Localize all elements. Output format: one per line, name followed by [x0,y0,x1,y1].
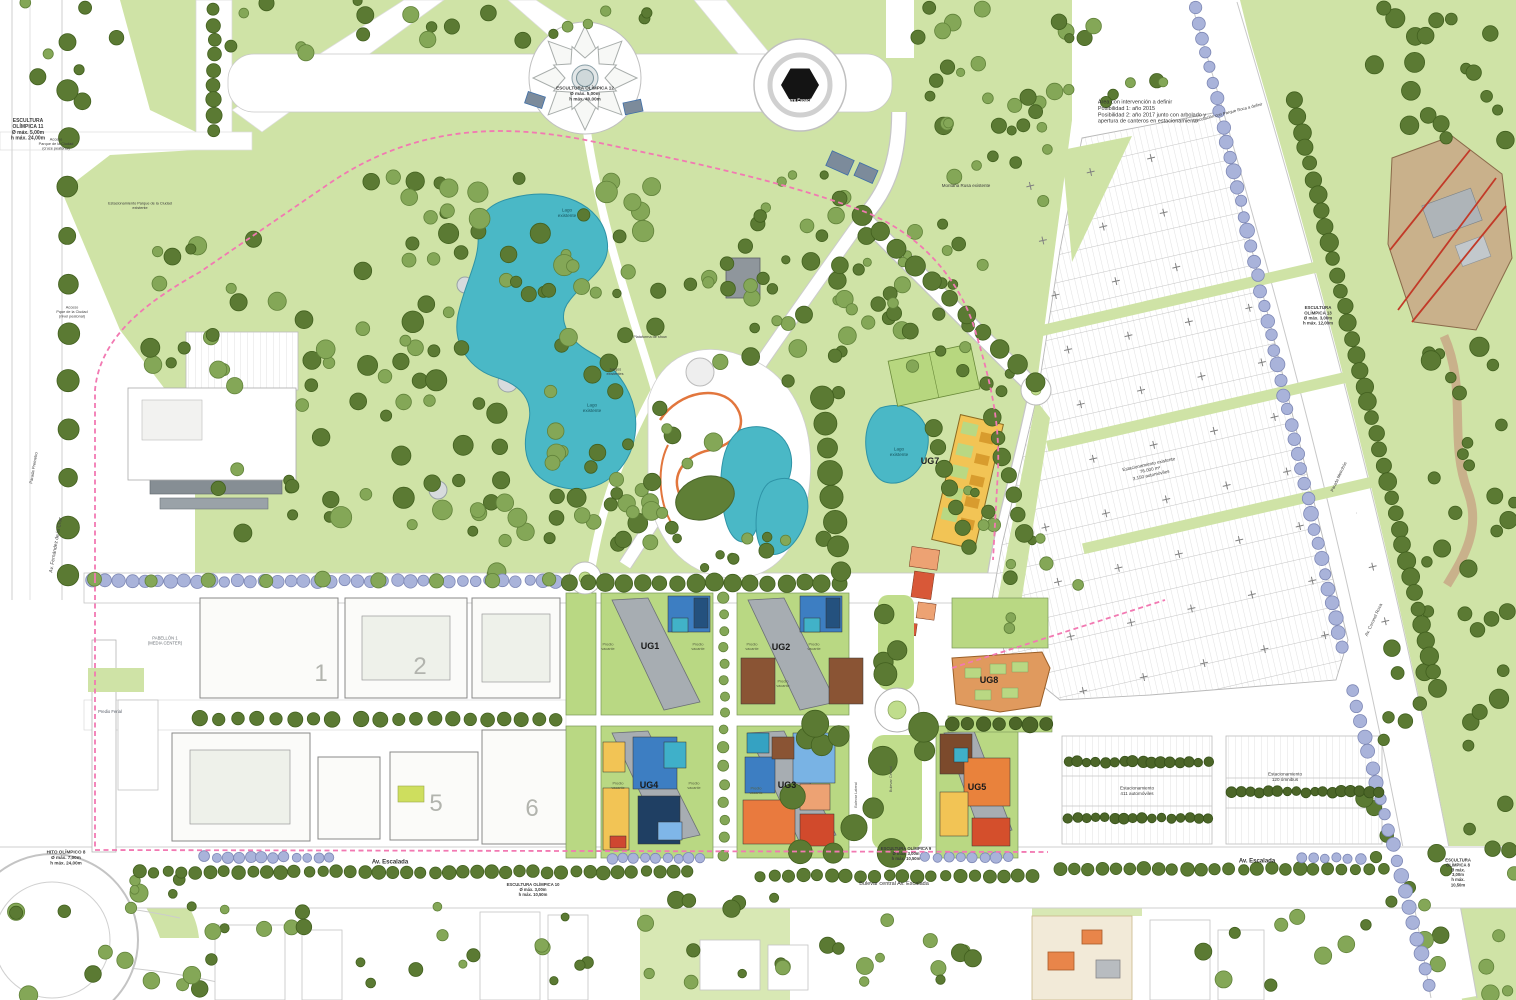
map-label: Lago existente [558,208,576,219]
map-label: 2 [413,655,426,683]
map-label: Predio Ferial [98,710,122,715]
map-label: UG2 [772,643,791,654]
map-label: Estacionamiento 120 ómnibus [1268,772,1302,783]
map-label: Predio vacante [776,680,789,689]
map-label: ESCULTURA OLÍMPICA 13 Ø máx. 3,00m h máx… [1303,306,1333,327]
map-label: Av. Coronel Roca [1364,603,1384,638]
map-label: UG8 [980,676,999,687]
map-labels: ESCULTURA OLÍMPICA 11 Ø máx. 5,00m h máx… [0,0,1516,1000]
map-label: Acceso Parque de la Ciudad (cruce peaton… [39,137,74,150]
map-label: Predio vacante [745,643,758,652]
map-label: UG1 [641,642,660,653]
map-label: Acceso Pque de la Ciudad (nivel peatonal… [56,305,87,318]
map-label: Bulevar Central [889,766,893,792]
map-label: ESCULTURA OLÍMPICA 8 Ø máx. 3,00m h máx.… [1445,858,1470,888]
map-label: 6 [525,797,538,825]
map-label: Parada Metrobús [1330,461,1348,492]
masterplan-map: ESCULTURA OLÍMPICA 11 Ø máx. 5,00m h máx… [0,0,1516,1000]
map-label: UG5 [968,783,987,794]
map-label: 5 [429,792,442,820]
map-label: Av. Escalada [372,858,408,865]
map-label: HITO OLÍMPICO 8 Ø máx. 7,00m h máx. 24,0… [47,850,86,866]
map-label: UG3 [778,781,797,792]
map-label: Av. Escalada [1239,857,1275,864]
map-label: 1 [314,662,327,690]
map-label: Lago existente [583,403,601,414]
map-label: Estacionamiento existente 76.000 m² 3.15… [1122,456,1178,483]
map-label: Área con intervención a definir Posibili… [1098,99,1206,125]
map-label: UG7 [921,457,940,468]
map-label: Juegos existentes [606,368,623,377]
map-label: Av. Fernández de la Cruz [48,517,64,573]
map-label: Predio vacante [611,782,624,791]
map-label: ESCULTURA OLÍMPICA 11 Ø máx. 5,00m h máx… [11,118,45,142]
map-label: Predio vacante [687,782,700,791]
map-label: ESCULTURA OLÍMPICA 9 Ø máx. 3,00m h máx.… [881,847,931,862]
map-label: Torre Espacial existente [786,98,815,108]
map-label: Vinculación con Parque Roca a definir [1193,102,1263,124]
map-label: Lago existente [890,447,908,458]
map-label: Parada Premetro [29,452,39,484]
map-label: PABELLÓN 1 (MEDIA CENTER) [148,636,182,646]
map-label: Estacionamiento Parque de la Ciudad exis… [108,202,172,211]
map-label: Predio vacante [601,643,614,652]
map-label: Plataforma de show [633,335,667,339]
map-label: Predio vacante [807,643,820,652]
map-label: Bulevar central Av. Escalada [859,881,929,887]
map-label: Predio vacante [691,643,704,652]
map-label: UG4 [640,781,659,792]
map-label: Montaña Rusa existente [942,183,991,188]
map-label: Estacionamiento 411 automóviles [1120,786,1154,797]
map-label: ESCULTURA OLÍMPICA 12 Ø máx. 5,00m h máx… [556,86,614,102]
map-label: Bulevar Lateral [854,782,858,808]
map-label: ESCULTURA OLÍMPICA 10 Ø máx. 3,00m h máx… [507,883,560,898]
map-label: Predio vacante [749,787,762,796]
